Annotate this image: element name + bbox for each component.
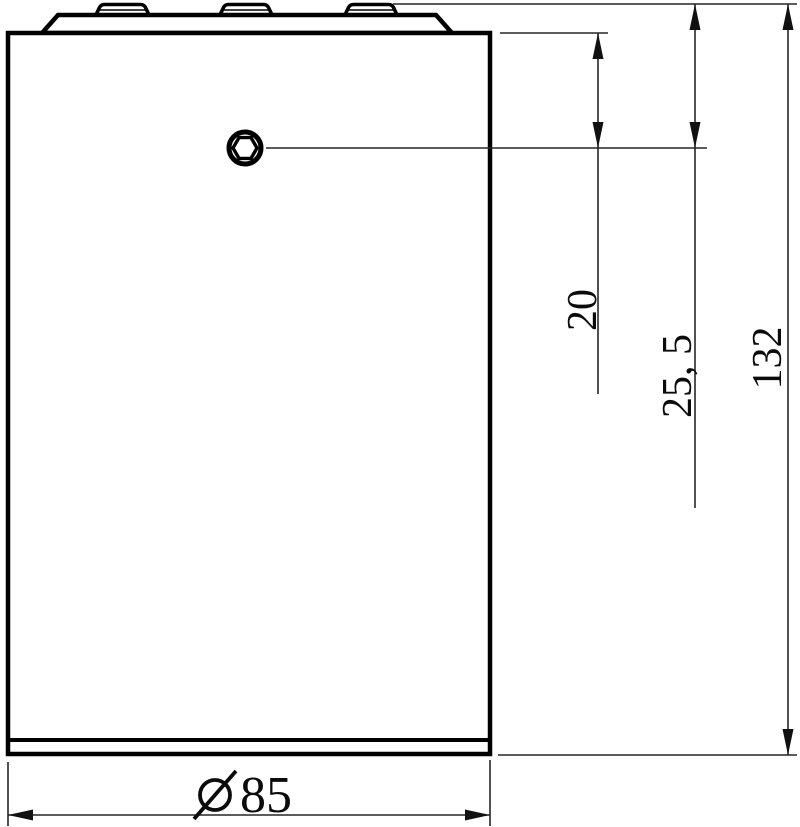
arrow-diameter-right [465,810,490,821]
dimension-label-25-5: 25, 5 [655,334,701,418]
technical-drawing-page: 20 25, 5 132 85 [0,0,800,827]
dimension-label-132: 132 [745,327,791,390]
arrow-25-5-up [690,4,701,30]
arrow-diameter-left [8,810,33,821]
technical-drawing-canvas: 20 25, 5 132 85 [0,0,800,827]
part-top-cap [42,15,452,33]
dimension-label-diameter-value: 85 [240,767,292,824]
arrow-20-up [593,33,604,59]
diameter-symbol-icon [194,771,236,819]
part-side-view [8,5,490,755]
arrow-132-up [783,4,794,30]
dimension-label-20: 20 [560,289,606,331]
hex-socket-screw [229,132,261,164]
arrow-132-down [783,729,794,755]
arrow-25-5-down [690,122,701,148]
arrow-20-down [593,122,604,148]
screw-hex-socket [233,138,257,159]
